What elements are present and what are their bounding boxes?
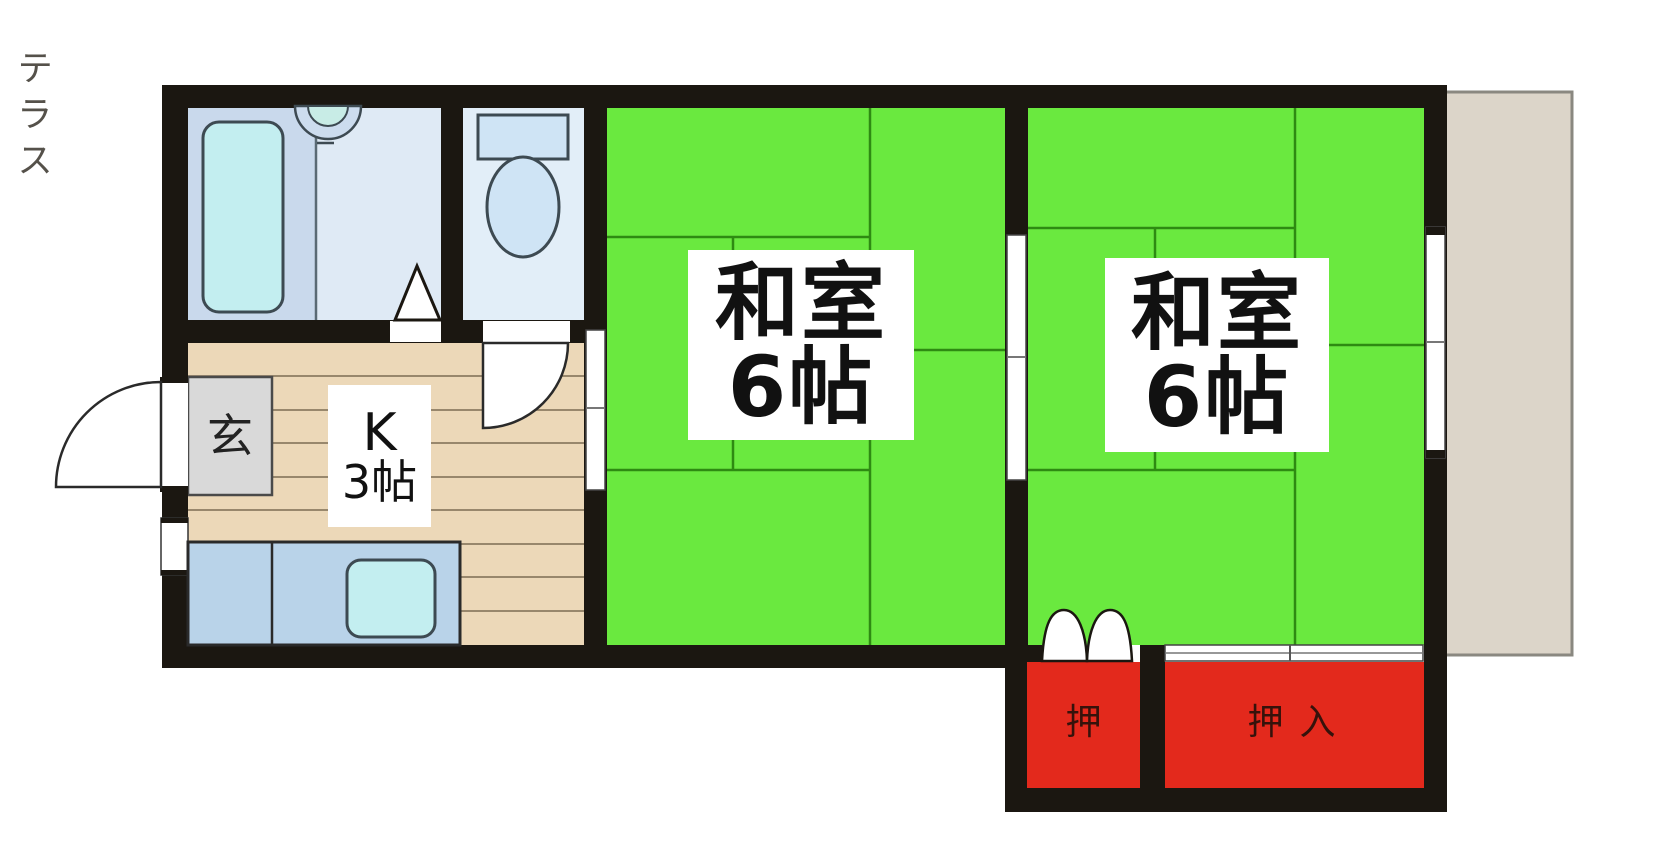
closet-small-label: 押 xyxy=(1027,662,1140,784)
bath-door-opening xyxy=(390,321,441,342)
sink-icon xyxy=(347,560,435,637)
entrance-opening xyxy=(160,377,188,492)
kitchen-window xyxy=(161,518,188,575)
kitchen-label-line2: 3帖 xyxy=(342,459,417,505)
terrace-sliding-door xyxy=(1426,227,1445,458)
closet-small-label-text: 押 xyxy=(1065,705,1101,741)
room1-label-line1: 和室 xyxy=(715,261,887,345)
room1-label-line2: 6帖 xyxy=(728,345,874,429)
entrance-label: 玄 xyxy=(188,377,272,495)
kitchen-label: K 3帖 xyxy=(328,385,431,527)
entrance-label-text: 玄 xyxy=(207,413,253,459)
entrance-door-arc xyxy=(56,382,161,487)
sliding-door-room1-room2 xyxy=(1007,235,1026,480)
room2-label-line1: 和室 xyxy=(1131,271,1303,355)
tatami-room-2-label: 和室 6帖 xyxy=(1105,258,1329,452)
kitchen-label-line1: K xyxy=(362,407,396,459)
room2-label-line2: 6帖 xyxy=(1144,355,1290,439)
closet-large-label-text: 押入 xyxy=(1247,705,1351,741)
terrace-area xyxy=(1440,92,1572,655)
sliding-door-kitchen-room1 xyxy=(586,330,605,490)
kitchen-counter xyxy=(188,542,460,645)
floor-plan: 玄 K 3帖 和室 6帖 和室 6帖 テラス 押 押入 xyxy=(0,0,1680,856)
toilet-door-opening xyxy=(483,321,570,342)
bathtub-icon xyxy=(203,122,283,312)
closet-large-sliding-door xyxy=(1165,645,1423,661)
closet-large-label: 押入 xyxy=(1165,662,1424,784)
tatami-room-1-label: 和室 6帖 xyxy=(688,250,914,440)
